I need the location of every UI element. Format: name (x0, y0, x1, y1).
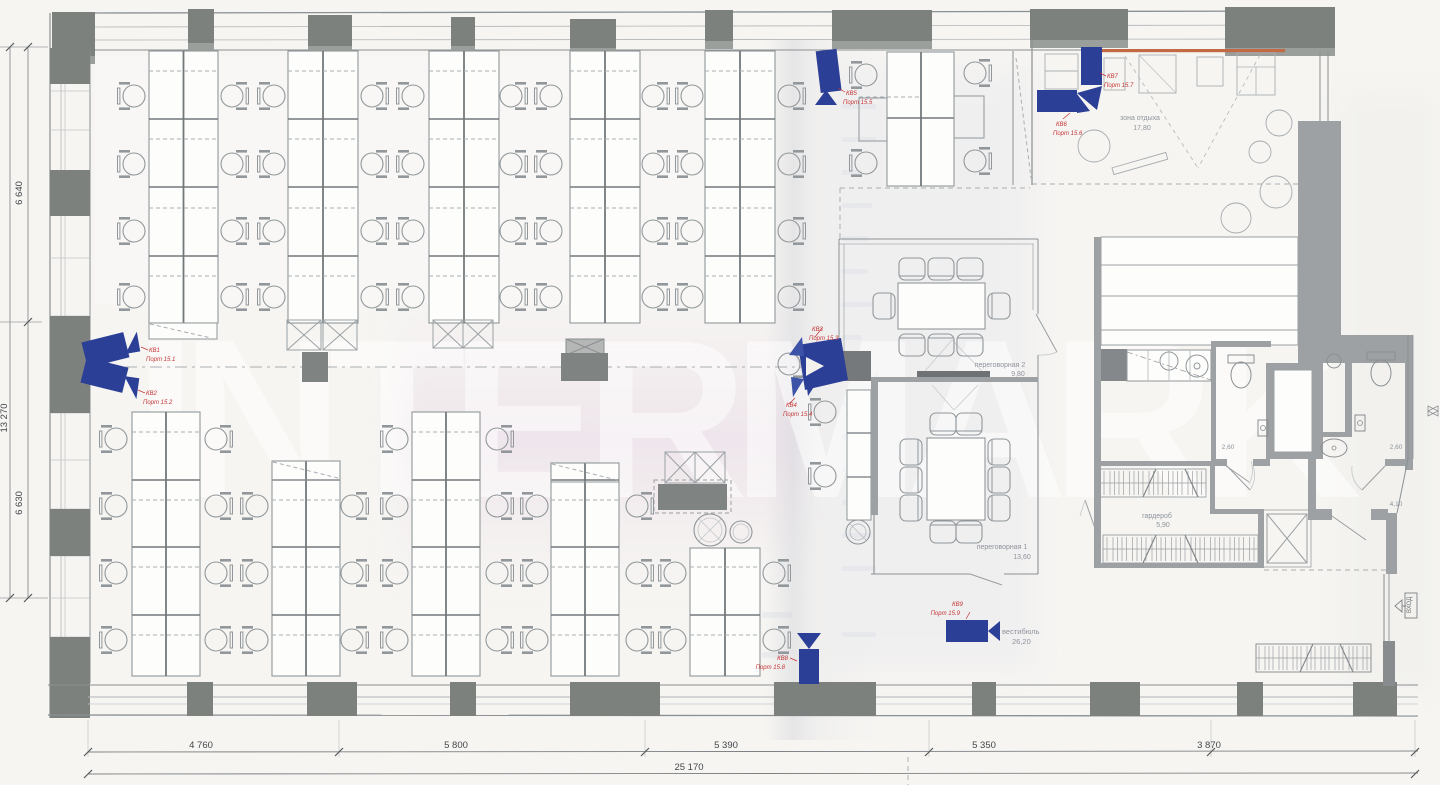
svg-text:4,10: 4,10 (1390, 501, 1403, 508)
svg-text:5 800: 5 800 (444, 740, 468, 751)
svg-text:13 270: 13 270 (0, 403, 10, 432)
svg-text:3 870: 3 870 (1197, 740, 1221, 751)
svg-text:вестибюль: вестибюль (1002, 627, 1040, 636)
svg-text:13,60: 13,60 (1013, 554, 1031, 561)
svg-text:17,80: 17,80 (1133, 125, 1151, 132)
svg-text:переговорная 2: переговорная 2 (975, 362, 1026, 369)
svg-text:КВ5: КВ5 (846, 91, 858, 97)
svg-text:5 390: 5 390 (714, 740, 738, 751)
svg-text:КВ3: КВ3 (812, 327, 824, 333)
svg-text:КВ9: КВ9 (952, 602, 964, 608)
svg-text:ВХОД: ВХОД (1407, 597, 1413, 613)
svg-text:КВ6: КВ6 (1056, 122, 1068, 128)
svg-text:6 630: 6 630 (14, 491, 25, 515)
svg-text:2,60: 2,60 (1222, 444, 1235, 451)
svg-text:Порт 15.1: Порт 15.1 (146, 357, 175, 363)
svg-text:Порт 15.3: Порт 15.3 (809, 336, 839, 342)
svg-text:КВ7: КВ7 (1107, 74, 1119, 80)
svg-text:зона отдыха: зона отдыха (1120, 115, 1160, 122)
svg-text:Порт 15.5: Порт 15.5 (843, 100, 873, 106)
svg-text:4 760: 4 760 (189, 740, 213, 751)
svg-text:5,90: 5,90 (1156, 522, 1170, 529)
svg-text:Порт 15.2: Порт 15.2 (143, 400, 173, 406)
svg-text:Порт 15.6: Порт 15.6 (1053, 131, 1083, 137)
svg-text:КВ8: КВ8 (777, 656, 789, 662)
svg-text:5 350: 5 350 (972, 740, 996, 751)
svg-text:переговорная 1: переговорная 1 (977, 544, 1028, 551)
svg-text:Порт 15.8: Порт 15.8 (756, 665, 786, 671)
svg-text:9,80: 9,80 (1011, 371, 1025, 378)
svg-text:26,20: 26,20 (1012, 637, 1031, 646)
svg-text:Порт 15.9: Порт 15.9 (931, 611, 961, 617)
svg-text:КВ4: КВ4 (786, 403, 798, 409)
svg-text:КВ2: КВ2 (146, 391, 158, 397)
svg-text:Порт 15.4: Порт 15.4 (783, 412, 813, 418)
svg-text:6 640: 6 640 (14, 181, 25, 205)
svg-text:гардероб: гардероб (1142, 512, 1172, 520)
svg-text:25 170: 25 170 (674, 762, 703, 773)
svg-text:2,60: 2,60 (1390, 444, 1403, 451)
svg-text:КВ1: КВ1 (149, 348, 160, 354)
svg-text:Порт 15.7: Порт 15.7 (1104, 83, 1134, 89)
